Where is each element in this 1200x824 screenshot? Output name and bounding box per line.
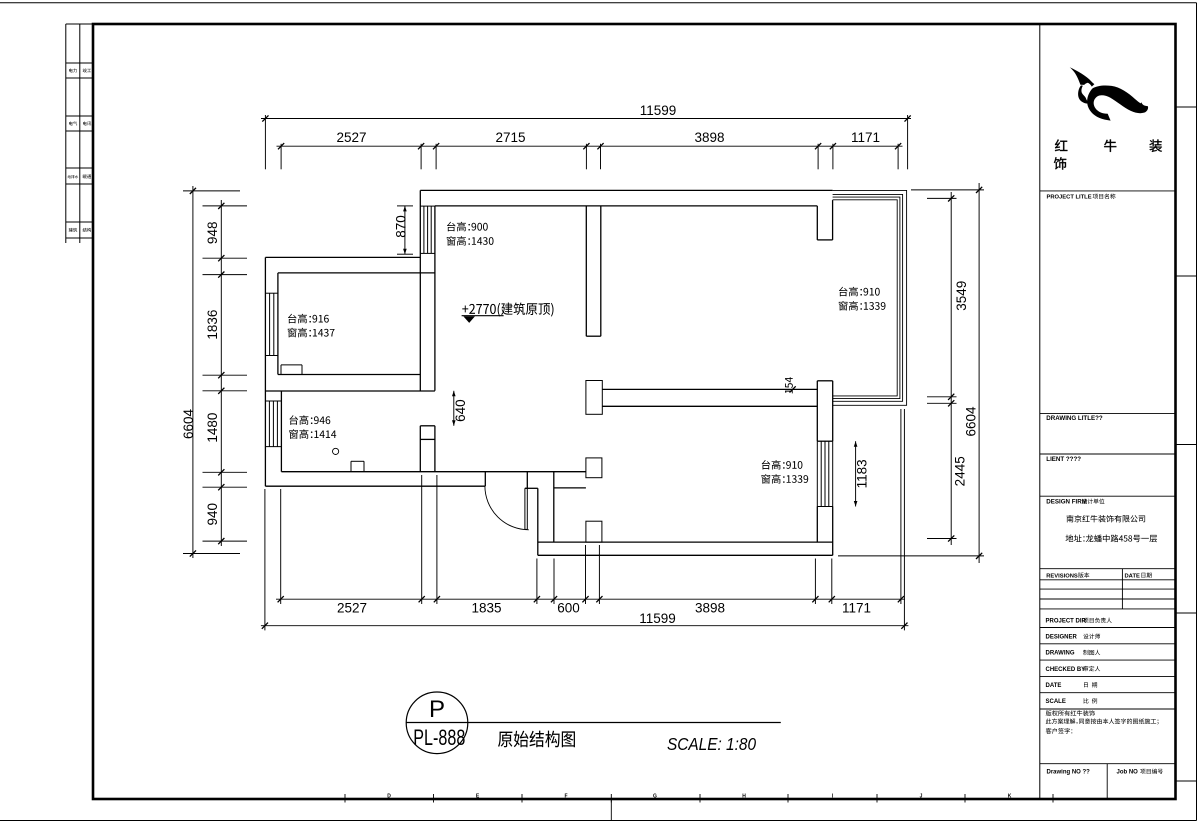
svg-text:SCALE: SCALE — [1046, 699, 1066, 705]
svg-text:11599: 11599 — [639, 611, 676, 626]
svg-text:SCALE: 1:80: SCALE: 1:80 — [667, 734, 756, 754]
svg-text:F: F — [564, 794, 567, 800]
svg-text:Job NO: Job NO — [1117, 770, 1139, 776]
svg-text:2527: 2527 — [337, 601, 367, 616]
svg-text:2527: 2527 — [336, 130, 366, 145]
svg-text:DRAWING: DRAWING — [1046, 651, 1075, 657]
svg-text:3549: 3549 — [954, 281, 969, 311]
svg-text:DESIGN FIRM: DESIGN FIRM — [1046, 499, 1087, 506]
svg-text:600: 600 — [557, 601, 580, 616]
svg-text:3898: 3898 — [694, 130, 724, 145]
svg-text:H: H — [742, 794, 746, 800]
svg-text:DESIGNER: DESIGNER — [1046, 635, 1078, 641]
svg-text:P: P — [429, 696, 445, 723]
svg-text:3898: 3898 — [695, 601, 725, 616]
svg-text:DRAWING LITLE??: DRAWING LITLE?? — [1046, 415, 1103, 422]
svg-text:PROJECT LITLE: PROJECT LITLE — [1047, 195, 1092, 201]
svg-text:11599: 11599 — [640, 103, 677, 118]
svg-text:1183: 1183 — [855, 459, 870, 488]
svg-text:LIENT ????: LIENT ???? — [1046, 456, 1081, 463]
svg-text:D: D — [387, 794, 391, 800]
svg-text:6604: 6604 — [964, 406, 979, 437]
svg-text:K: K — [1008, 794, 1012, 800]
svg-text:J: J — [920, 794, 923, 800]
svg-text:640: 640 — [453, 399, 468, 422]
svg-text:PL-888: PL-888 — [413, 725, 465, 750]
svg-text:2715: 2715 — [495, 130, 525, 145]
svg-text:948: 948 — [205, 222, 220, 245]
svg-text:1171: 1171 — [851, 130, 880, 145]
svg-text:PROJECT DIR: PROJECT DIR — [1046, 619, 1087, 625]
svg-text:DATE: DATE — [1125, 573, 1140, 579]
svg-text:940: 940 — [205, 503, 220, 526]
svg-text:2445: 2445 — [952, 456, 967, 486]
svg-text:CHECKED BY: CHECKED BY — [1046, 667, 1086, 673]
svg-text:Drawing NO ??: Drawing NO ?? — [1047, 770, 1091, 776]
svg-text:1836: 1836 — [205, 310, 220, 340]
svg-text:1171: 1171 — [842, 601, 871, 616]
svg-text:DATE: DATE — [1046, 683, 1062, 689]
svg-text:G: G — [653, 794, 657, 800]
svg-text:1835: 1835 — [471, 601, 501, 616]
svg-text:REVISIONS: REVISIONS — [1046, 573, 1078, 579]
svg-text:1480: 1480 — [205, 413, 220, 443]
svg-text:870: 870 — [394, 215, 409, 238]
svg-text:6604: 6604 — [181, 408, 196, 439]
